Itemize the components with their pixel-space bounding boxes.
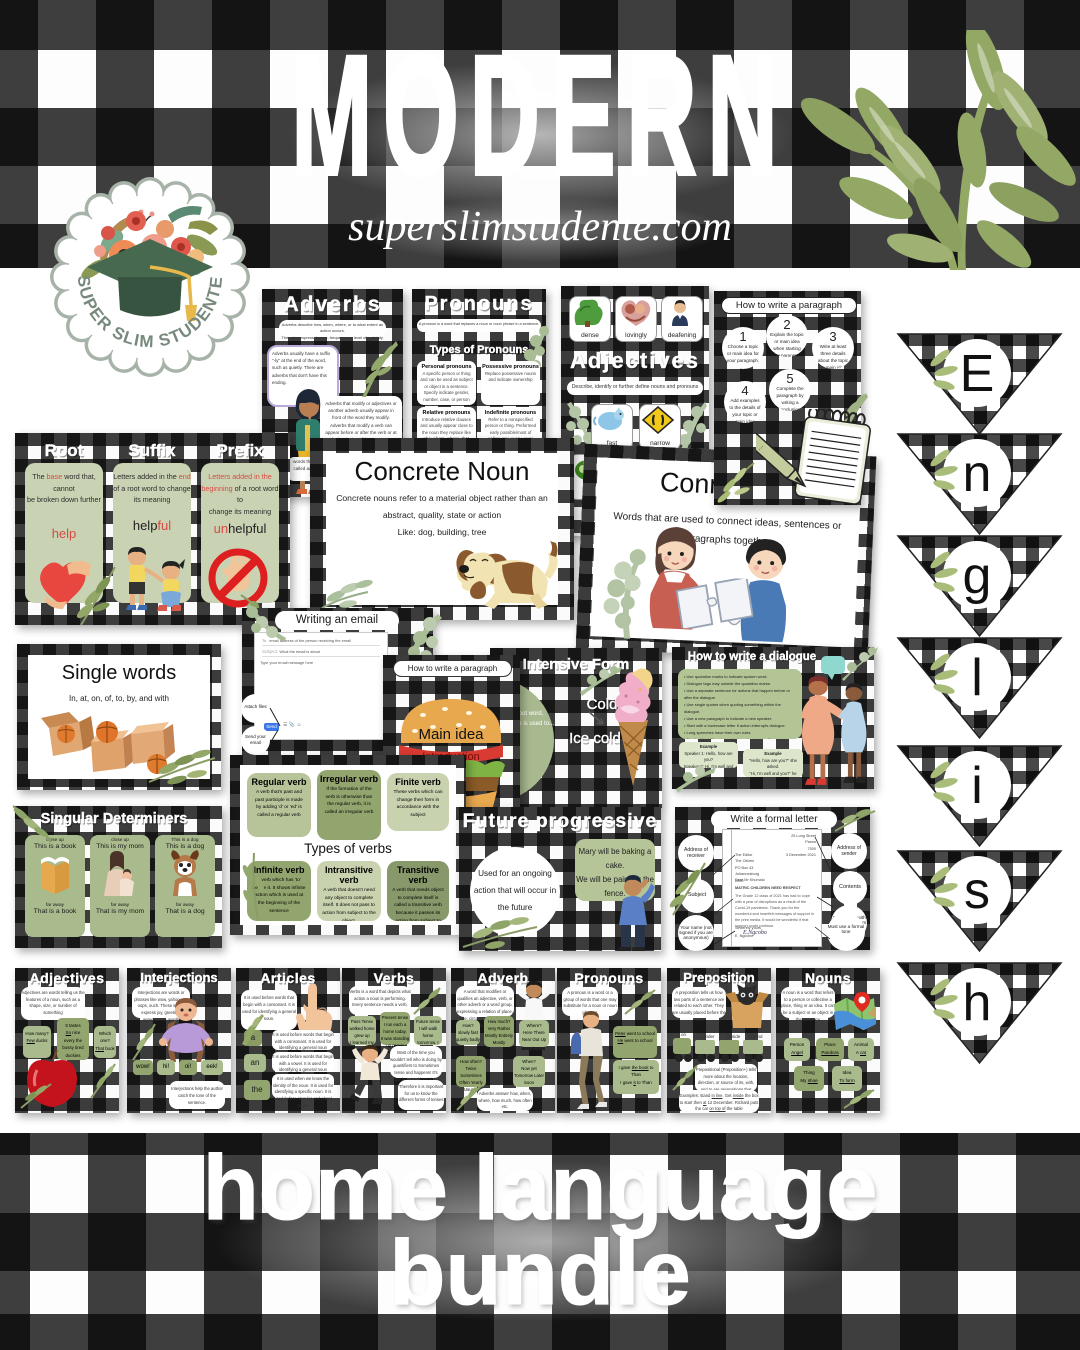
svg-text:behind: behind	[749, 1034, 763, 1039]
svg-text:under: under	[703, 1034, 715, 1039]
svg-text:i: i	[971, 757, 983, 815]
svg-text:E: E	[960, 345, 995, 403]
svg-text:n: n	[963, 445, 992, 503]
svg-text:g: g	[963, 547, 992, 605]
svg-text:s: s	[964, 862, 990, 920]
svg-text:on: on	[681, 1032, 687, 1037]
svg-text:l: l	[971, 649, 983, 707]
svg-text:h: h	[963, 974, 992, 1032]
svg-text:beside: beside	[727, 1034, 741, 1039]
svg-text:Main idea: Main idea	[418, 726, 484, 743]
